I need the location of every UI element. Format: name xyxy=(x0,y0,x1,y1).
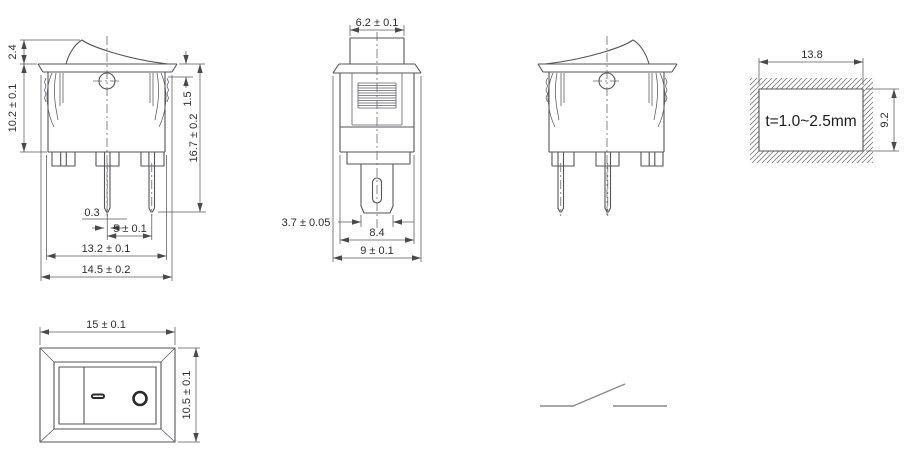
dim-cutout-height: 9.2 xyxy=(879,112,891,127)
dim-cutout-width: 13.8 xyxy=(801,49,822,61)
flange-outline xyxy=(538,64,677,72)
housing-outline xyxy=(48,72,165,152)
snap-latch-left xyxy=(45,73,64,127)
dim-terminal-width: 3.7 ± 0.05 xyxy=(282,217,331,229)
dim-face-width: 15 ± 0.1 xyxy=(86,319,126,331)
dim-actuator-width: 6.2 ± 0.1 xyxy=(356,17,399,29)
drawing-sheet: 2.4 10.2 ± 0.1 1.5 16.7 ± 0.2 0.3 5 ± 0.… xyxy=(0,0,910,460)
on-mark xyxy=(92,395,104,399)
front-view-alt xyxy=(538,36,677,216)
terminal-blocks xyxy=(52,152,164,166)
dim-terminal-pitch: 5 ± 0.1 xyxy=(113,223,147,235)
dim-flange-depth: 9 ± 0.1 xyxy=(360,245,394,257)
dim-flange-to-snap: 1.5 xyxy=(182,91,194,106)
rocker-face xyxy=(59,367,156,424)
terminal-pins xyxy=(558,163,611,216)
dim-terminal-thickness: 0.3 xyxy=(84,207,99,219)
technical-drawing-rocker-switch: 2.4 10.2 ± 0.1 1.5 16.7 ± 0.2 0.3 5 ± 0.… xyxy=(0,0,910,460)
off-mark xyxy=(134,392,147,405)
dim-rocker-height: 2.4 xyxy=(7,44,19,59)
dim-flange-width: 14.5 ± 0.2 xyxy=(82,264,131,276)
dim-housing-width: 13.2 ± 0.1 xyxy=(82,243,131,255)
front-view: 2.4 10.2 ± 0.1 1.5 16.7 ± 0.2 0.3 5 ± 0.… xyxy=(7,36,206,281)
top-view: 15 ± 0.1 10.5 ± 0.1 xyxy=(40,319,200,442)
panel-cutout-view: 13.8 9.2 t=1.0~2.5mm xyxy=(750,49,899,163)
terminal-support xyxy=(347,152,410,164)
extension-lines xyxy=(40,327,200,442)
side-view: 6.2 ± 0.1 3.7 ± 0.05 8.4 9 ± 0.1 xyxy=(282,17,421,262)
rocker-outline xyxy=(545,40,649,64)
extension-lines xyxy=(759,58,899,151)
dim-housing-depth: 8.4 xyxy=(369,227,384,239)
dim-housing-height: 10.2 ± 0.1 xyxy=(7,84,19,133)
flange-outline xyxy=(38,64,177,72)
panel-thickness-label: t=1.0~2.5mm xyxy=(765,113,856,130)
switch-blade-line xyxy=(573,384,625,406)
terminal-pins xyxy=(105,163,155,216)
dim-face-height: 10.5 ± 0.1 xyxy=(181,371,193,420)
housing-outline xyxy=(549,72,664,152)
rocker-outline xyxy=(66,40,168,64)
snap-latch-right xyxy=(150,73,169,127)
circuit-symbol-spst-switch xyxy=(540,384,667,406)
dim-total-height: 16.7 ± 0.2 xyxy=(188,114,200,163)
